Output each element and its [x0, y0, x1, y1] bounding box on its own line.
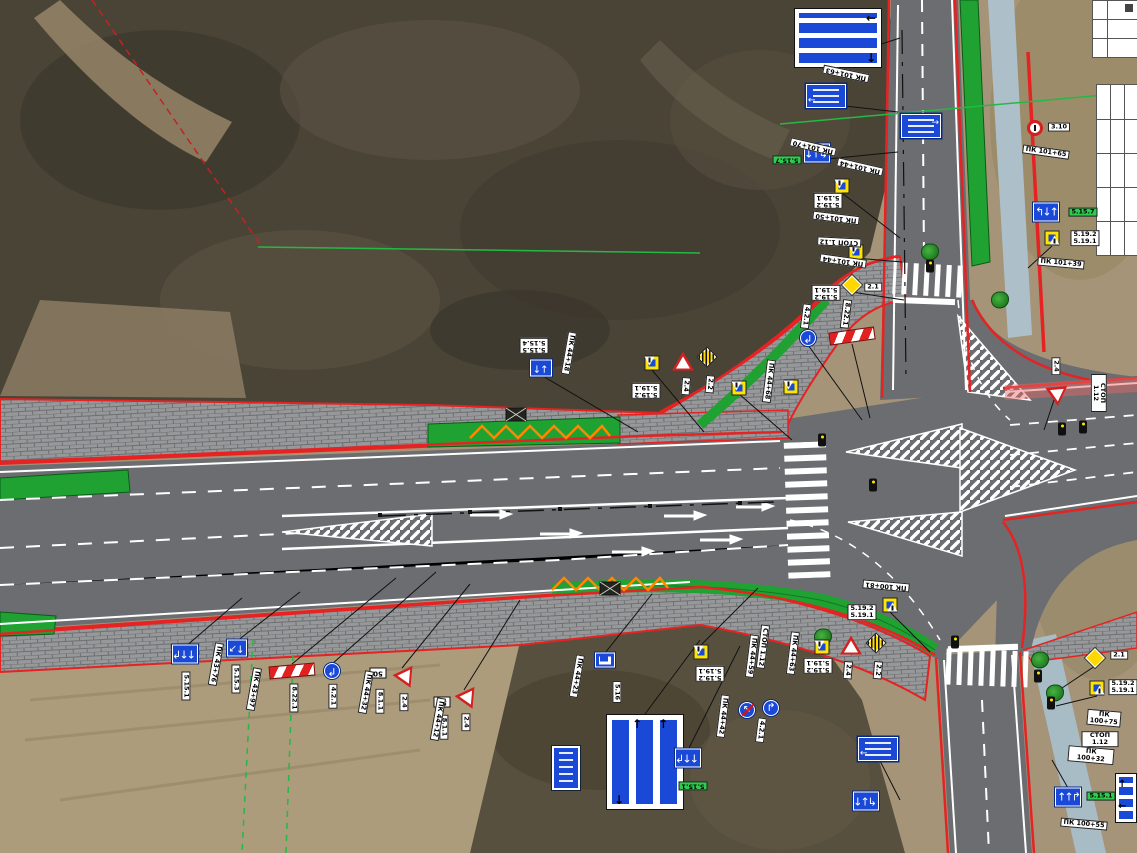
sign-board-big3: [607, 715, 683, 809]
sign-code-label: 2.2: [705, 375, 715, 393]
sign-code-label: 5.19.2 5.19.1: [1070, 230, 1099, 246]
sign-round-arrow: [324, 663, 340, 679]
sign-code-label: 4.2.1: [800, 303, 812, 328]
sign-code-label: 4.2.1: [755, 717, 767, 742]
sign-ped: [836, 180, 849, 193]
station-label: ПК 101+65: [1022, 144, 1070, 159]
sign-code-label: 5.19.2 5.19.1: [803, 658, 832, 674]
sign-board-small: [901, 114, 941, 138]
traffic-signal-icon: [1047, 697, 1055, 710]
title-block-table-side: [1096, 84, 1137, 256]
sign-round-slash: [739, 702, 755, 718]
sign-lane-153: [227, 640, 247, 657]
tree-icon: [921, 244, 939, 261]
station-label: ПК 44+42: [716, 694, 730, 737]
sign-round-arrow: [763, 700, 779, 716]
stop-marking-label: СТОП 1.12: [756, 624, 770, 669]
sign-code-label: 8.1.1: [376, 689, 385, 714]
station-label: ПК 43+97: [246, 667, 262, 710]
sign-code-label: 5.19.2 5.19.1: [813, 193, 842, 209]
sign-ped: [695, 646, 708, 659]
sign-board-big4: [795, 9, 881, 67]
station-label: ПК 44+68: [762, 359, 776, 402]
station-label: ПК 44+18: [561, 331, 577, 374]
station-label: ПК 100+81: [862, 580, 910, 593]
sign-code-label: 5.15.3: [232, 664, 241, 693]
sign-giveway: [1041, 378, 1068, 406]
sign-board-small: [806, 84, 846, 108]
sign-lane-157: [853, 792, 879, 811]
sign-round-arrow: [800, 330, 816, 346]
sign-ped: [884, 599, 897, 612]
sign-code-label: 5.19.2 5.19.1: [1108, 679, 1137, 695]
sign-lane-155: [530, 360, 552, 377]
sign-board-dir: [1115, 773, 1137, 823]
sign-board-small: [858, 737, 898, 761]
sign-code-label: 2.4: [843, 661, 853, 679]
traffic-signal-icon: [869, 479, 877, 492]
sign-ped: [733, 382, 746, 395]
sign-code-label: 2.4: [462, 713, 471, 731]
sign-barrier: [269, 663, 316, 680]
station-label: ПК 100+32: [1067, 745, 1114, 765]
stop-marking-label: СТОП 1.12: [817, 236, 862, 247]
sign-code-label: 8.22.1: [840, 299, 852, 329]
frame-marker-icon: [1125, 4, 1133, 12]
station-label: ПК 100+75: [1086, 709, 1121, 728]
tree-icon: [1031, 652, 1049, 669]
traffic-signal-icon: [1034, 670, 1042, 683]
sign-code-label: 5.15.7: [1068, 208, 1097, 217]
traffic-signal-icon: [1079, 421, 1087, 434]
sign-code-label: 2.2: [873, 661, 883, 679]
sign-board-small2: [552, 746, 580, 790]
sign-giveway: [672, 352, 694, 371]
sign-ped: [646, 357, 659, 370]
sign-code-label: 5.19.2 5.19.1: [847, 604, 876, 620]
sign-code-label: 5.15.5 5.15.4: [519, 338, 548, 354]
station-label: ПК 44+63: [786, 631, 800, 674]
sign-giveway: [454, 685, 475, 709]
tree-icon: [991, 292, 1009, 309]
sign-code-label: 5.19.2 5.19.1: [811, 285, 840, 301]
sign-code-label: 3.10: [1048, 123, 1070, 132]
sign-code-label: 5.15.1: [1086, 792, 1115, 801]
station-label: ПК 101+63: [822, 65, 870, 83]
sign-code-label: 4.2.1: [329, 684, 338, 709]
sign-no-ped: [1027, 120, 1043, 136]
sign-lane-151: [675, 749, 701, 768]
sign-code-label: 5.15.7: [772, 156, 801, 165]
sign-mainroad: [845, 278, 859, 292]
station-label: ПК 44+32: [358, 670, 374, 713]
sign-giveway: [840, 636, 862, 655]
sign-endmain: [701, 351, 714, 364]
traffic-signal-icon: [818, 434, 826, 447]
sign-endmain: [870, 637, 883, 650]
sign-ped: [785, 381, 798, 394]
sign-lane-157: [1033, 203, 1059, 222]
sign-code-label: 8.22.1: [290, 683, 299, 712]
station-label: ПК 101+39: [1037, 257, 1085, 270]
sign-mainroad: [1088, 651, 1102, 665]
sign-annotation-layer: 5050ПК 101+63ПК 101+705.15.75.19.2 5.19.…: [0, 0, 1137, 853]
sign-lane-151: [172, 645, 198, 664]
sign-code-label: 5.15.1: [678, 782, 707, 791]
station-label: ПК 100+55: [1060, 818, 1108, 831]
sign-barrier: [828, 326, 875, 345]
sign-code-label: 5.15.1: [182, 671, 191, 700]
stop-marking-label: СТОП 1.12: [1082, 731, 1119, 747]
sign-code-label: 2.4: [1052, 357, 1061, 375]
sign-ped: [1091, 682, 1104, 695]
sign-code-label: 2.1: [864, 283, 882, 292]
traffic-signal-icon: [951, 636, 959, 649]
station-label: ПК 101+50: [812, 211, 860, 225]
sign-giveway: [392, 664, 413, 688]
sign-code-label: 2.1: [1110, 651, 1128, 660]
station-label: ПК 101+44: [836, 157, 884, 176]
sign-bus: [595, 653, 615, 668]
traffic-plan-canvas: 5050ПК 101+63ПК 101+705.15.75.19.2 5.19.…: [0, 0, 1137, 853]
sign-lane-151: [1055, 788, 1081, 807]
sign-code-label: 5.16: [613, 681, 622, 703]
sign-code-label: 2.4: [400, 693, 409, 711]
station-label: ПК 44+23: [569, 654, 585, 697]
traffic-signal-icon: [926, 260, 934, 273]
traffic-signal-icon: [1058, 423, 1066, 436]
sign-code-label: 5.19.2 5.19.1: [631, 383, 660, 399]
sign-code-label: 5.19.2 5.19.1: [695, 666, 724, 682]
station-label: ПК 43+76: [208, 642, 224, 685]
title-block-table-top: [1092, 0, 1137, 58]
sign-code-label: 2.4: [681, 377, 691, 395]
stop-marking-label: СТОП 1.12: [1091, 374, 1107, 412]
sign-ped: [1046, 232, 1059, 245]
sign-ped: [816, 641, 829, 654]
